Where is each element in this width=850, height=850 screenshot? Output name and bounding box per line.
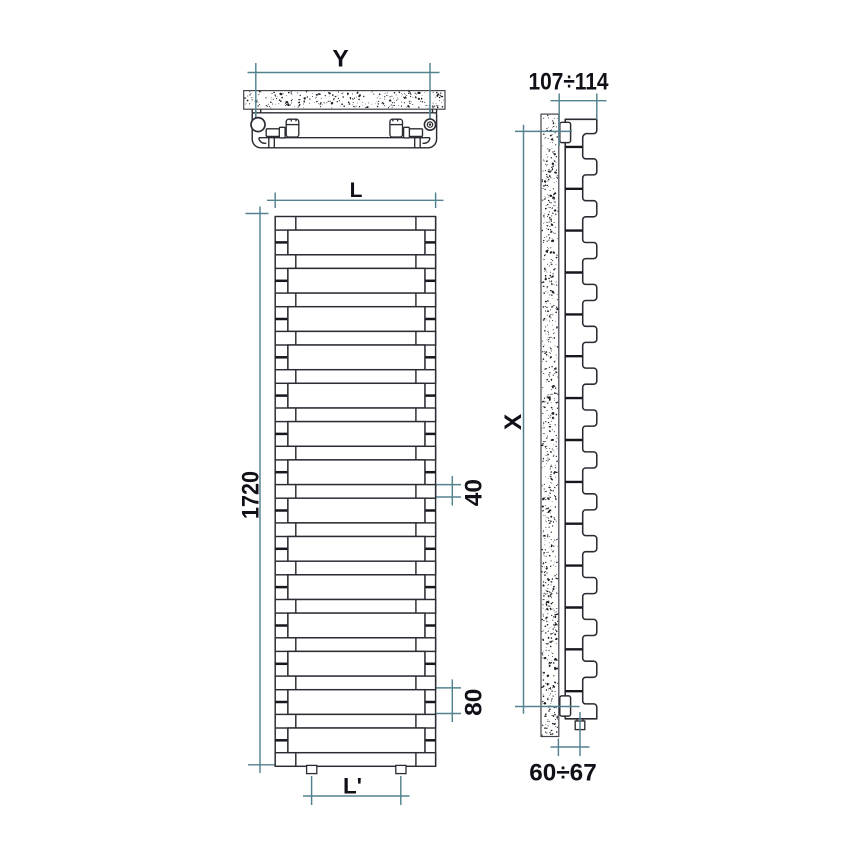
svg-text:60÷67: 60÷67 — [529, 760, 597, 787]
svg-text:107÷114: 107÷114 — [529, 69, 609, 96]
svg-text:X: X — [500, 413, 527, 430]
svg-text:Y: Y — [332, 45, 348, 72]
svg-text:1720: 1720 — [237, 471, 264, 519]
svg-text:40: 40 — [460, 479, 487, 506]
svg-text:80: 80 — [460, 689, 487, 716]
svg-text:L': L' — [343, 774, 362, 799]
svg-text:L: L — [350, 179, 363, 202]
